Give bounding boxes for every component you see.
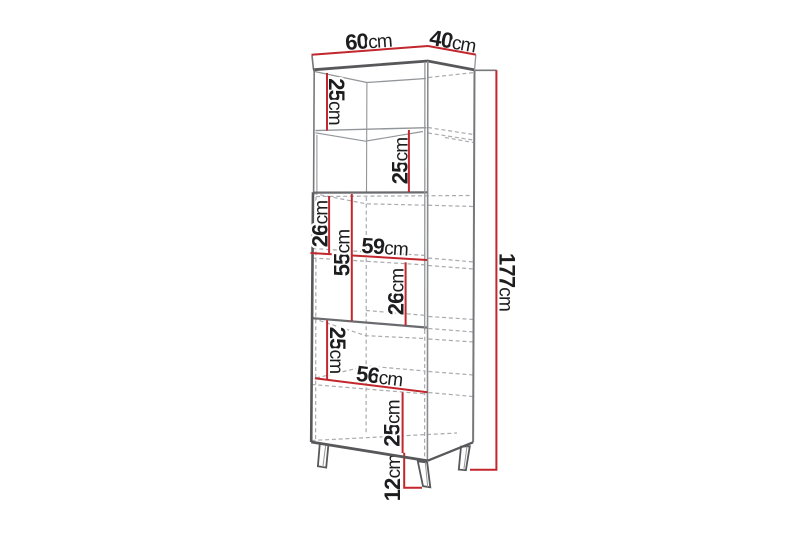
svg-text:25cm: 25cm [380, 400, 405, 447]
svg-text:25cm: 25cm [325, 327, 350, 374]
svg-text:12cm: 12cm [380, 455, 405, 502]
svg-text:177cm: 177cm [495, 253, 520, 311]
